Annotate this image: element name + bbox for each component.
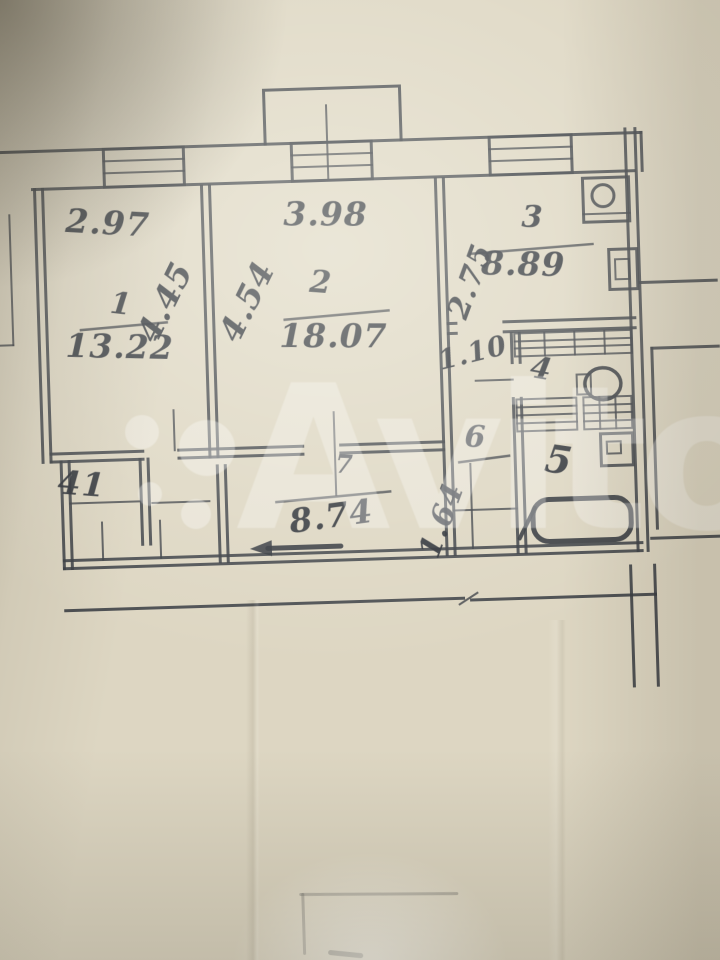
room3-area: 8.89 [481, 243, 566, 284]
wall-hall-toilet [511, 333, 526, 552]
vent-hatch-left [516, 398, 577, 432]
dim-living2-width: 3.98 [283, 194, 368, 233]
floor-plan-photo: 2.97 4.45 1 13.22 3.98 4.54 2 18.07 2.75… [0, 0, 720, 960]
room6-number: 6 [464, 419, 487, 455]
plan-linework [0, 0, 720, 960]
window-hatch-kitchen [489, 135, 572, 176]
room2-number: 2 [308, 264, 333, 302]
bath-heater-icon [600, 433, 633, 466]
bottom-outer-wall [64, 543, 642, 569]
room3-number: 3 [521, 199, 544, 235]
room1-area: 13.22 [65, 326, 174, 367]
stove-icon [582, 177, 629, 222]
window-hatch-room2 [291, 141, 372, 181]
room2-area: 18.07 [279, 316, 387, 355]
bathtub-icon [519, 497, 632, 542]
window-hatch-room1 [103, 147, 184, 187]
closet6-walls [450, 380, 518, 549]
room1-number: 1 [108, 286, 134, 323]
sink-icon [609, 249, 638, 290]
shelf-hatch-top [514, 330, 632, 357]
bottom-smudge-lines [301, 890, 459, 958]
wall-rooms-corridor [50, 402, 446, 504]
dim-living1-width: 2.97 [65, 201, 151, 245]
floor-plan-drawing: 2.97 4.45 1 13.22 3.98 4.54 2 18.07 2.75… [0, 0, 720, 960]
room7-number: 7 [335, 450, 355, 480]
storage-label: 41 [56, 462, 107, 504]
left-outer-wall [0, 189, 72, 571]
